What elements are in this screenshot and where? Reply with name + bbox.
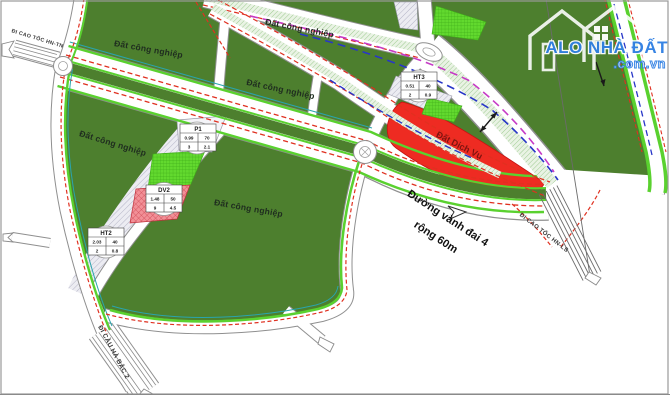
table-p1-area: 0.99 (185, 136, 194, 141)
logo-domain: .com.vn (613, 56, 666, 71)
table-dv2-density: 50 (170, 197, 176, 202)
table-ht3-coef: 0.9 (425, 93, 432, 98)
map-canvas: P1 0.99 70 3 2.1 DV2 1.48 50 9 4.5 HT2 2… (0, 0, 670, 404)
table-ht2: HT2 2.03 40 2 0.8 (88, 226, 124, 258)
roundabout-b (354, 141, 377, 164)
table-p1-id: P1 (194, 127, 202, 133)
table-ht2-floors: 2 (96, 249, 99, 254)
table-p1-density: 70 (204, 136, 210, 141)
logo-title: ALO NHÀ ĐẤT (545, 38, 668, 57)
table-dv2-coef: 4.5 (170, 206, 177, 211)
roundabout-a (54, 57, 73, 76)
table-ht2-coef: 0.8 (112, 249, 119, 254)
table-ht3-density: 40 (425, 84, 431, 89)
land-planning-map: P1 0.99 70 3 2.1 DV2 1.48 50 9 4.5 HT2 2… (0, 0, 670, 404)
table-dv2-id: DV2 (158, 188, 170, 194)
table-p1: P1 0.99 70 3 2.1 (180, 122, 216, 154)
table-p1-floors: 3 (188, 145, 191, 150)
table-ht3-id: HT3 (413, 75, 425, 81)
table-ht3: HT3 0.51 40 2 0.9 (401, 70, 437, 102)
table-p1-coef: 2.1 (204, 145, 211, 150)
table-ht3-floors: 2 (409, 93, 412, 98)
table-ht3-area: 0.51 (406, 84, 415, 89)
table-ht2-density: 40 (112, 240, 118, 245)
table-ht2-area: 2.03 (93, 240, 102, 245)
table-dv2-floors: 9 (154, 206, 157, 211)
table-dv2-area: 1.48 (151, 197, 160, 202)
table-ht2-id: HT2 (100, 231, 112, 237)
table-dv2: DV2 1.48 50 9 4.5 (146, 183, 182, 216)
